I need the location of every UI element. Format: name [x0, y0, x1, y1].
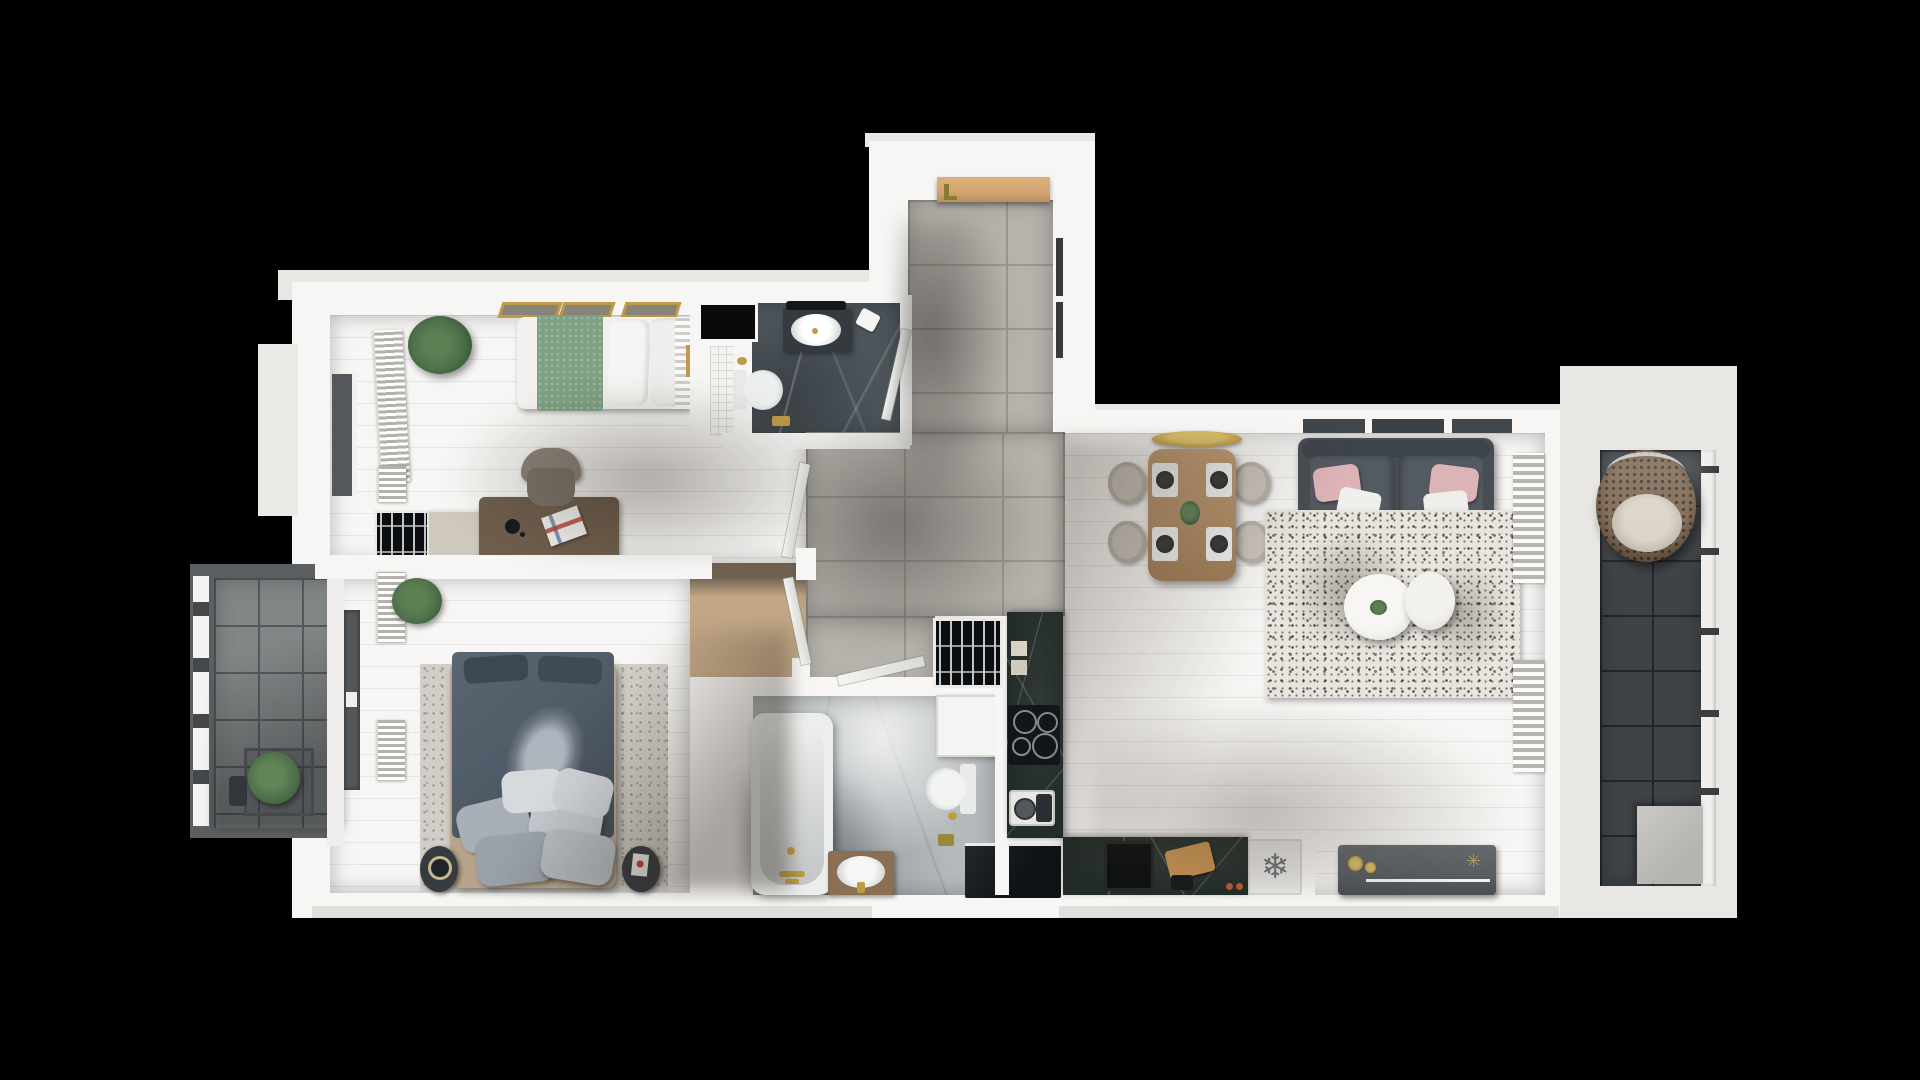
living-window-2	[1372, 419, 1444, 433]
master-shadow	[500, 630, 790, 890]
window-sill-tab	[258, 344, 298, 516]
master-plant	[392, 578, 442, 624]
watering-can	[229, 776, 247, 806]
loggia-railing	[1701, 450, 1716, 886]
toilet-gold-button	[737, 357, 747, 365]
bedroom-1-side-window-glass	[332, 374, 352, 496]
coffee-machine-dial-1	[1014, 798, 1036, 820]
bathroom-bottom-faucet	[857, 882, 865, 893]
living-radiator-lower	[1513, 660, 1544, 772]
toilet-2-bowl	[926, 768, 966, 810]
burner-2	[1037, 712, 1058, 733]
burner-3	[1012, 737, 1031, 756]
railing-post-3	[1697, 628, 1719, 635]
bedroom-1-side-window-frame	[352, 374, 357, 496]
bedroom-1-radiator-lower	[377, 466, 406, 502]
balcony-left-wall-strip	[327, 560, 344, 846]
loggia-step-box	[1637, 806, 1703, 884]
railing-post-5	[1697, 788, 1719, 795]
bedroom-1-shadow	[450, 380, 810, 560]
burner-1	[1013, 710, 1037, 734]
outer-band-bottom-left	[312, 906, 872, 918]
entrance-wardrobe-niche-1	[1056, 238, 1063, 296]
bathroom-top-faucet	[786, 301, 846, 310]
counter-item-1	[1011, 641, 1027, 656]
dark-cabinet	[965, 843, 1061, 898]
living-shadow-bottom	[1090, 700, 1510, 890]
bedside-clock	[428, 856, 452, 880]
living-radiator-upper	[1513, 453, 1544, 583]
railing-post-4	[1697, 710, 1719, 717]
coffee-machine-body	[1036, 794, 1052, 822]
coffee-table-small	[1405, 572, 1455, 630]
balcony-left-glass-panels	[193, 576, 209, 826]
entrance-door-handle-foot	[944, 196, 957, 200]
loggia-light	[1600, 450, 1703, 610]
burner-4	[1032, 733, 1058, 759]
induction-cooktop	[1008, 705, 1060, 765]
planter-plant	[248, 752, 300, 804]
bathroom-top-niche	[698, 302, 758, 342]
toilet-2-gold-button	[948, 812, 957, 820]
living-window-1	[1303, 419, 1365, 433]
master-balcony-door-handle	[346, 692, 357, 707]
master-radiator-lower	[376, 720, 405, 780]
bathroom-bottom-toilet	[926, 764, 976, 814]
hallway-shadow	[800, 420, 1040, 650]
outer-band-bottom-right	[1059, 906, 1559, 918]
living-window-3	[1452, 419, 1512, 433]
kitchen-wine-rack	[933, 618, 1003, 688]
counter-item-2	[1011, 660, 1027, 675]
coffee-machine	[1009, 790, 1055, 826]
bedroom-1-plant	[408, 316, 472, 374]
floor-plan-scene: ❄ ✳	[0, 0, 1920, 1080]
bathroom-bottom-towel	[938, 834, 954, 846]
basin-gold-drain	[812, 328, 818, 334]
washing-machine	[936, 695, 998, 757]
entrance-wardrobe-niche-2	[1056, 302, 1063, 358]
